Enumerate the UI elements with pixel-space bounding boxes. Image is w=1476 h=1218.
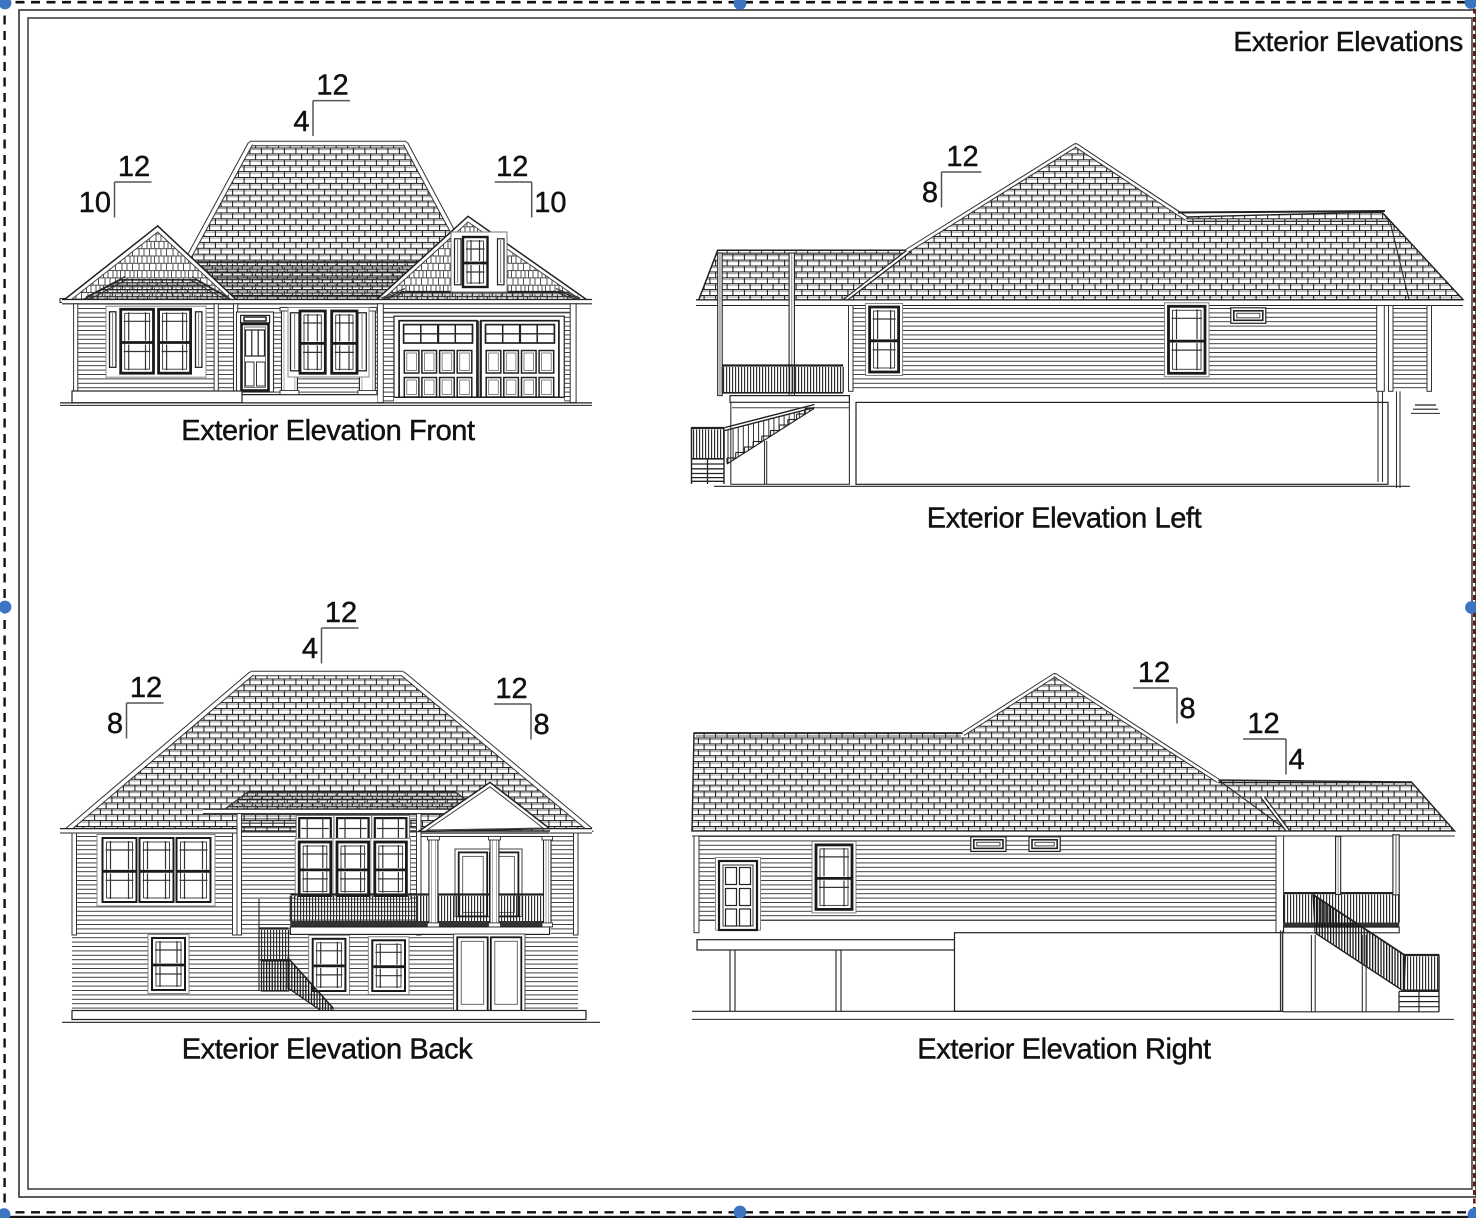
- svg-text:Exterior Elevation Back: Exterior Elevation Back: [182, 1034, 473, 1066]
- svg-text:12: 12: [495, 673, 527, 705]
- svg-text:8: 8: [1180, 693, 1196, 725]
- svg-text:10: 10: [79, 187, 111, 219]
- svg-text:8: 8: [922, 177, 938, 209]
- svg-text:12: 12: [946, 141, 978, 173]
- svg-text:4: 4: [1289, 744, 1305, 776]
- svg-text:Exterior Elevation Front: Exterior Elevation Front: [181, 415, 475, 447]
- svg-text:Exterior Elevations: Exterior Elevations: [1233, 26, 1463, 57]
- svg-text:4: 4: [302, 633, 318, 665]
- svg-text:12: 12: [118, 151, 150, 183]
- svg-text:4: 4: [293, 106, 309, 138]
- svg-text:12: 12: [316, 70, 348, 102]
- svg-text:12: 12: [130, 672, 162, 704]
- svg-text:8: 8: [534, 709, 550, 741]
- svg-text:8: 8: [107, 708, 123, 740]
- svg-text:10: 10: [534, 187, 566, 219]
- svg-text:Exterior Elevation Left: Exterior Elevation Left: [927, 503, 1202, 535]
- svg-text:12: 12: [1138, 657, 1170, 689]
- svg-text:12: 12: [1247, 708, 1279, 740]
- svg-text:12: 12: [496, 151, 528, 183]
- svg-text:Exterior Elevation Right: Exterior Elevation Right: [917, 1034, 1211, 1066]
- svg-text:12: 12: [325, 597, 357, 629]
